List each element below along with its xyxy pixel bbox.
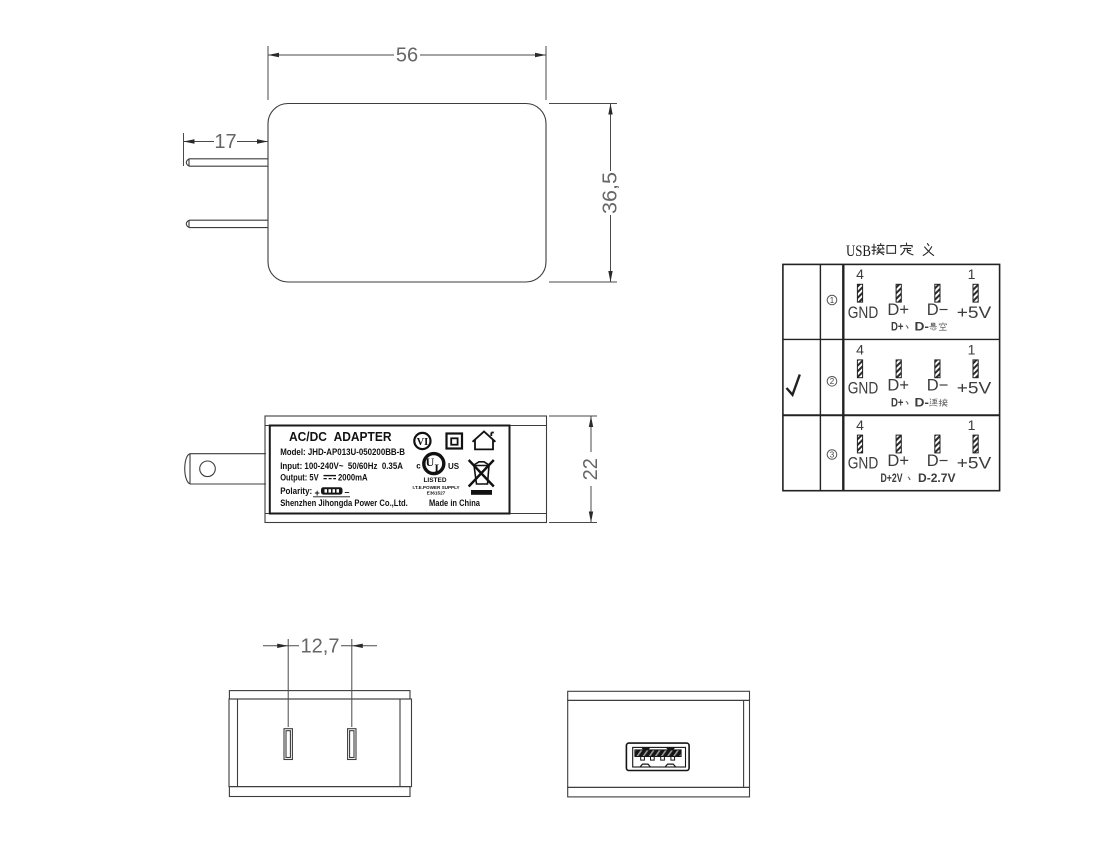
svg-text:Model: JHD-AP013U-050200BB-B: Model: JHD-AP013U-050200BB-B — [280, 447, 405, 457]
svg-text:I.T.E.POWER SUPPLY: I.T.E.POWER SUPPLY — [412, 485, 459, 490]
svg-text:36,5: 36,5 — [600, 172, 622, 214]
svg-text:L: L — [434, 461, 442, 475]
svg-text:–: – — [345, 487, 350, 497]
svg-text:D+2V: D+2V — [881, 473, 903, 485]
svg-text:Made in China: Made in China — [429, 498, 481, 508]
svg-text:US: US — [448, 462, 460, 471]
svg-text:LISTED: LISTED — [423, 477, 446, 484]
svg-text:c: c — [416, 462, 421, 471]
svg-text:12,7: 12,7 — [301, 635, 340, 657]
svg-text:D−: D− — [927, 377, 949, 395]
svg-text:U: U — [426, 455, 435, 469]
svg-text:D-2.7V: D-2.7V — [918, 473, 956, 485]
svg-text:D+: D+ — [887, 377, 909, 395]
svg-text:+5V: +5V — [957, 379, 992, 397]
svg-text:1: 1 — [830, 296, 835, 305]
svg-text:4: 4 — [856, 342, 864, 358]
svg-text:D−: D− — [927, 301, 949, 319]
svg-text:GND: GND — [848, 455, 879, 473]
svg-text:56: 56 — [396, 45, 418, 67]
svg-text:D+: D+ — [887, 452, 909, 470]
svg-text:1: 1 — [968, 266, 976, 282]
svg-text:D+: D+ — [891, 322, 904, 334]
svg-text:3: 3 — [830, 450, 835, 459]
svg-text:D-: D- — [915, 322, 930, 334]
svg-text:2: 2 — [830, 377, 835, 386]
svg-text:Shenzhen Jihongda Power Co.,Lt: Shenzhen Jihongda Power Co.,Ltd. — [280, 498, 408, 508]
svg-text:22: 22 — [580, 458, 602, 480]
svg-text:D-: D- — [915, 397, 930, 409]
svg-text:4: 4 — [856, 266, 864, 282]
svg-text:Output: 5V: Output: 5V — [280, 473, 319, 483]
svg-text:1: 1 — [968, 417, 976, 433]
svg-text:USB: USB — [846, 243, 871, 260]
svg-text:E361527: E361527 — [427, 491, 446, 496]
svg-text:17: 17 — [214, 131, 236, 153]
svg-text:D+: D+ — [891, 397, 904, 409]
svg-text:Input: 100-240V~ 50/60Hz 0.3: Input: 100-240V~ 50/60Hz 0.35A — [280, 461, 403, 471]
svg-text:AC/DC ADAPTER: AC/DC ADAPTER — [289, 430, 392, 444]
svg-text:+5V: +5V — [957, 304, 992, 322]
svg-text:+5V: +5V — [957, 455, 992, 473]
svg-text:D−: D− — [927, 452, 949, 470]
svg-text:1: 1 — [968, 342, 976, 358]
svg-text:GND: GND — [848, 379, 879, 397]
svg-text:2000mA: 2000mA — [338, 473, 368, 483]
svg-text:Polarity:: Polarity: — [280, 486, 312, 496]
svg-text:GND: GND — [848, 304, 879, 322]
svg-text:D+: D+ — [887, 301, 909, 319]
svg-text:4: 4 — [856, 417, 864, 433]
svg-text:VI: VI — [417, 437, 429, 448]
